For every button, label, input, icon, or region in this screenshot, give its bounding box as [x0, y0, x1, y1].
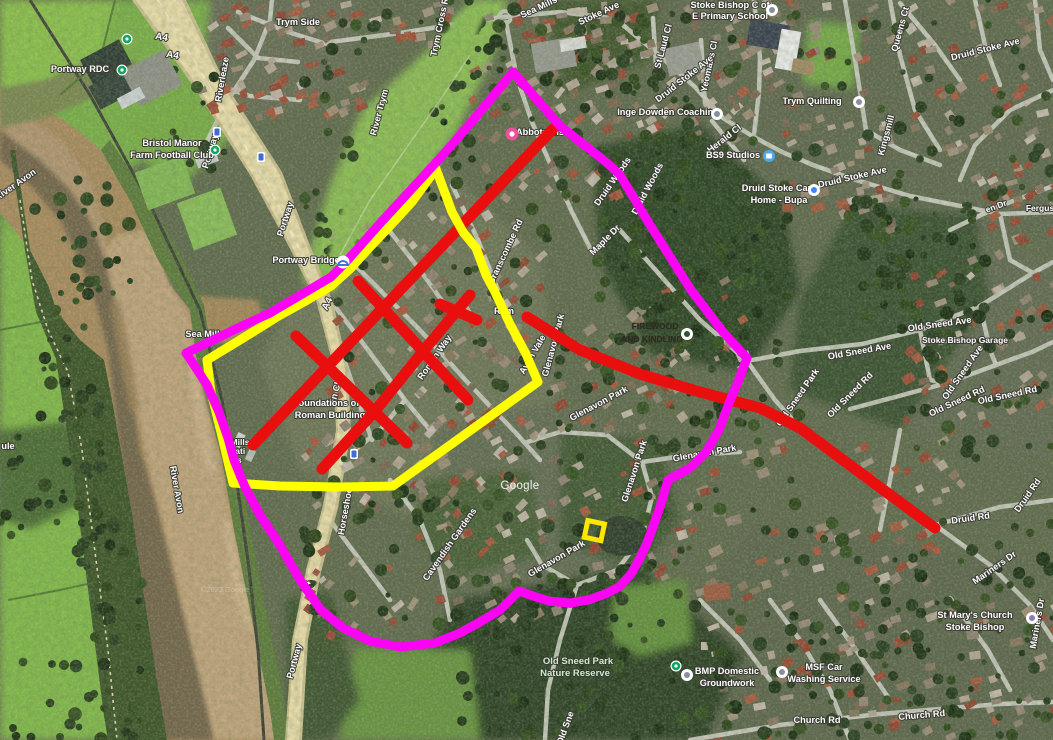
svg-text:©2023 Google: ©2023 Google	[201, 585, 249, 594]
svg-text:BS9 Studios: BS9 Studios	[706, 150, 760, 160]
svg-text:MSF Car: MSF Car	[805, 662, 843, 672]
svg-text:Trym Side: Trym Side	[276, 17, 320, 27]
svg-text:Farm Football Club: Farm Football Club	[130, 150, 214, 160]
svg-text:Church Rd: Church Rd	[794, 715, 841, 725]
svg-text:Old Sneed Park: Old Sneed Park	[543, 656, 614, 667]
svg-text:Bristol Manor: Bristol Manor	[142, 138, 202, 148]
svg-text:Stoke Bishop: Stoke Bishop	[946, 622, 1005, 632]
svg-text:Home - Bupa: Home - Bupa	[751, 195, 809, 205]
svg-text:Washing Service: Washing Service	[787, 674, 860, 684]
svg-text:Portway RDC: Portway RDC	[51, 64, 110, 74]
svg-text:Stoke Bishop C of: Stoke Bishop C of	[690, 0, 770, 10]
svg-text:Inge Dowden Coaching: Inge Dowden Coaching	[617, 107, 719, 117]
svg-text:Portway Bridge: Portway Bridge	[272, 255, 339, 265]
svg-text:ule: ule	[1, 441, 14, 451]
svg-text:A4: A4	[154, 31, 169, 44]
svg-text:A4: A4	[165, 49, 180, 62]
svg-text:BMP Domestic: BMP Domestic	[695, 666, 759, 676]
svg-text:Groundwork: Groundwork	[700, 678, 756, 688]
svg-text:Google: Google	[501, 480, 540, 492]
svg-text:St Mary's Church: St Mary's Church	[937, 610, 1013, 620]
svg-text:Roman Building: Roman Building	[295, 410, 365, 420]
svg-text:Nature Reserve: Nature Reserve	[540, 668, 610, 679]
svg-text:FIREWOOD: FIREWOOD	[632, 321, 679, 331]
svg-text:E Primary School: E Primary School	[692, 11, 768, 21]
svg-text:Druid Stoke Care: Druid Stoke Care	[742, 183, 817, 193]
svg-text:Fergus: Fergus	[1026, 203, 1053, 213]
svg-text:AND KINDLING: AND KINDLING	[621, 334, 683, 344]
svg-text:Trym Quilting: Trym Quilting	[782, 96, 841, 106]
svg-text:Stoke Bishop Garage: Stoke Bishop Garage	[922, 335, 1008, 345]
